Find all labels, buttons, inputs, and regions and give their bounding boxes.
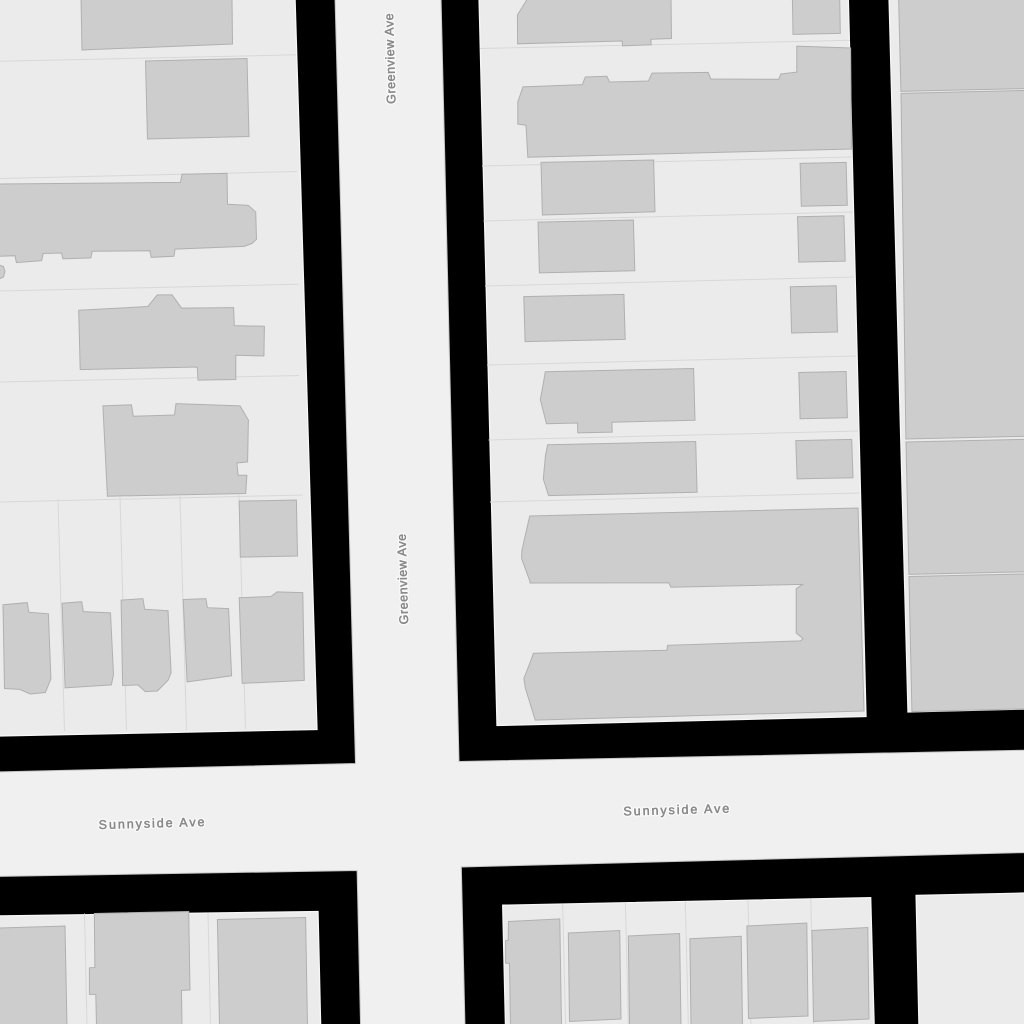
svg-text:Greenview Ave: Greenview Ave	[395, 533, 411, 624]
svg-text:Greenview Ave: Greenview Ave	[382, 13, 398, 104]
